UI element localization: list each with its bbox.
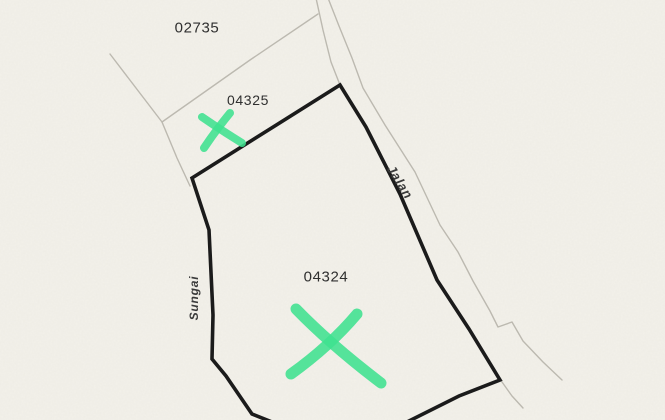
parcel-label-04324: 04324 — [304, 269, 349, 286]
parcel-label-04325: 04325 — [227, 92, 269, 108]
paper-texture — [0, 0, 665, 420]
cadastral-map: 02735 04325 04324 Jalan Sungai — [0, 0, 665, 420]
river-label-sungai: Sungai — [187, 276, 201, 321]
map-canvas — [0, 0, 665, 420]
parcel-label-02735: 02735 — [175, 20, 220, 37]
